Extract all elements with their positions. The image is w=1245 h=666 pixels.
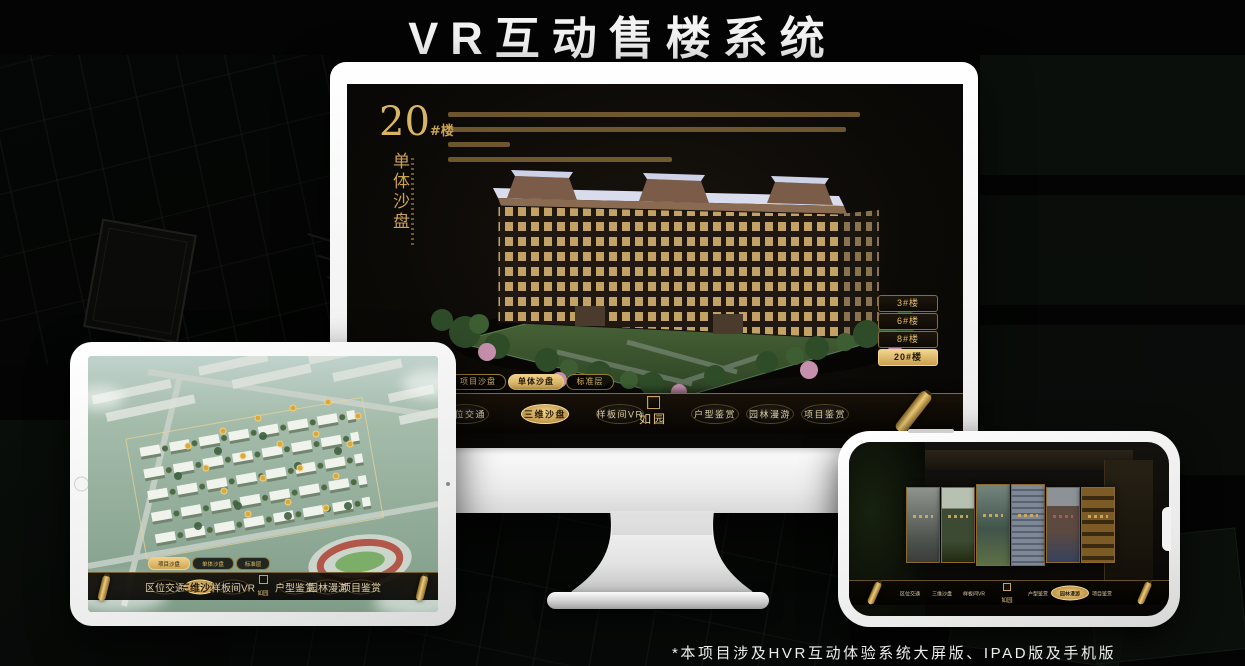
ruyuan-seal-icon [1003, 583, 1011, 591]
thumbnail-caption [1018, 514, 1039, 517]
monitor-base [547, 592, 769, 609]
ruyuan-seal-icon [646, 396, 659, 409]
block-subtitle: 单体沙盘 [387, 152, 412, 232]
tablet-navbar: 区位交通 三维沙盘 样板间VR 如园 户型鉴赏 园林漫游 项目鉴赏 [88, 572, 438, 600]
phone-ruyuan-logo: 如园 [997, 583, 1017, 609]
poster-canvas: VR互动售楼系统 [0, 0, 1245, 666]
footnote: *本项目涉及HVR互动体验系统大屏版、IPAD版及手机版 [672, 642, 1116, 663]
block-number-value: 20 [379, 99, 430, 145]
background-photo-strip [980, 55, 1245, 475]
tablet-tab-single-sandtable[interactable]: 单体沙盘 [192, 557, 234, 570]
floor-button-3[interactable]: 3#楼 [878, 295, 938, 312]
phone-screen: 区位交通 三维沙盘 样板间VR 如园 户型鉴赏 园林漫游 项目鉴赏 [849, 442, 1169, 616]
description-line [448, 127, 846, 132]
description-line [448, 112, 860, 117]
background-plaque [83, 219, 197, 344]
tablet-tab-project-sandtable[interactable]: 项目沙盘 [148, 557, 190, 570]
thumbnail-caption [983, 514, 1004, 517]
floor-button-6[interactable]: 6#楼 [878, 313, 938, 330]
description-line [448, 142, 510, 147]
page-title: VR互动售楼系统 [0, 2, 1245, 67]
block-subtitle-en [411, 158, 414, 248]
thumbnail-caption [948, 515, 969, 518]
phone-navbar: 区位交通 三维沙盘 样板间VR 如园 户型鉴赏 园林漫游 项目鉴赏 [849, 580, 1169, 605]
thumbnail-caption [1088, 515, 1109, 518]
tablet-device: 项目沙盘 单体沙盘 标准层 区位交通 三维沙盘 样板间VR 如园 户型鉴赏 园林… [70, 342, 456, 626]
phone-notch [1162, 507, 1171, 551]
tablet-camera [446, 482, 450, 486]
ruyuan-seal-icon [259, 575, 268, 584]
panorama-thumbnail-2[interactable] [941, 487, 975, 563]
home-button[interactable] [74, 477, 89, 492]
phone-side-button [908, 429, 954, 433]
monitor-stand [552, 511, 772, 597]
ruyuan-logo: 如园 [639, 396, 667, 428]
tab-single-sandtable[interactable]: 单体沙盘 [508, 374, 564, 390]
background-map-texture [0, 55, 330, 365]
scroll-icon [97, 574, 111, 601]
panorama-thumbnail-1[interactable] [906, 487, 940, 563]
block-number: 20#楼 [379, 102, 454, 142]
panorama-thumbnail-6[interactable] [1081, 487, 1115, 563]
panorama-thumbnail-4[interactable] [1011, 484, 1045, 566]
tab-standard-floor[interactable]: 标准层 [566, 374, 614, 390]
floor-button-8[interactable]: 8#楼 [878, 331, 938, 348]
scroll-icon [866, 581, 882, 606]
thumbnail-caption [1053, 515, 1074, 518]
description-line [448, 157, 672, 162]
thumbnail-caption [913, 515, 934, 518]
tablet-tab-standard-floor[interactable]: 标准层 [236, 557, 270, 570]
panorama-thumbnail-5[interactable] [1046, 487, 1080, 563]
tablet-screen: 项目沙盘 单体沙盘 标准层 区位交通 三维沙盘 样板间VR 如园 户型鉴赏 园林… [88, 356, 438, 612]
scroll-icon [1136, 581, 1152, 606]
tablet-ruyuan-logo: 如园 [253, 575, 273, 602]
floor-button-20[interactable]: 20#楼 [878, 349, 938, 366]
phone-device: 区位交通 三维沙盘 样板间VR 如园 户型鉴赏 园林漫游 项目鉴赏 [838, 431, 1180, 627]
tab-project-sandtable[interactable]: 项目沙盘 [450, 374, 506, 390]
scroll-icon [415, 574, 429, 601]
panorama-thumbnail-3[interactable] [976, 484, 1010, 566]
